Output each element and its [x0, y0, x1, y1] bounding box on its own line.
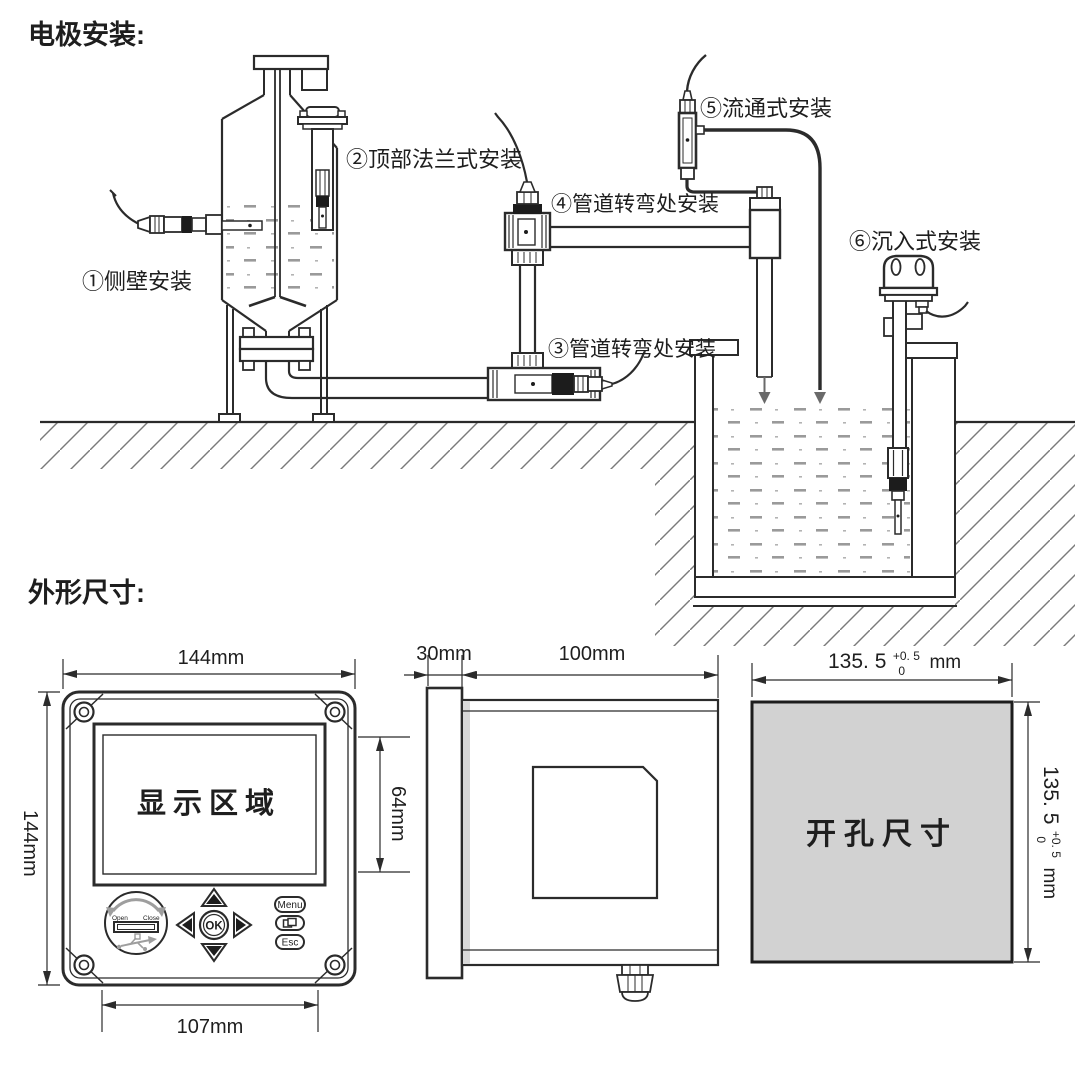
label-side-wall-install: ①侧壁安装: [82, 269, 192, 294]
cutout-label: 开孔尺寸: [806, 818, 958, 851]
basin-inlet-tee: [750, 187, 780, 404]
usb-open-label: Open: [112, 915, 128, 922]
electrode-pipe-bend-upper: [495, 113, 550, 265]
cutout-height-unit: mm: [1039, 867, 1060, 899]
label-pipe-bend-upper-install: ④管道转弯处安装: [551, 193, 719, 216]
display-area-label: 显示区域: [137, 787, 281, 820]
flow-arrow-pipe: [759, 392, 771, 404]
cutout-width-unit: mm: [929, 652, 961, 673]
cutout-view: 开孔尺寸 135. 5 +0. 5 0 mm 135. 5 +0. 5 0 mm: [752, 647, 1065, 962]
ok-button-label: OK: [205, 921, 223, 933]
basin-water: [714, 404, 910, 575]
label-flow-through-install: ⑤流通式安装: [700, 96, 832, 121]
cutout-height-tol-minus: 0: [1034, 836, 1048, 843]
front-view: 显示区域 Open Close: [19, 647, 410, 1038]
cutout-width-main: 135. 5: [828, 650, 886, 673]
cutout-height-dim: 135. 5 +0. 5 0 mm: [1033, 766, 1065, 899]
cutout-width-tol-minus: 0: [898, 664, 905, 678]
cutout-width-tol-plus: +0. 5: [893, 649, 920, 663]
usb-port: Open Close: [105, 892, 167, 954]
tank-outlet-flange: [240, 328, 313, 370]
menu-button-label: Menu: [277, 900, 302, 911]
flow-arrow-hose: [814, 392, 826, 404]
section-title-electrode-install: 电极安装:: [28, 20, 145, 50]
housing-body: [462, 700, 718, 965]
body-depth-dim: 100mm: [559, 643, 626, 665]
cutout-width-dim: 135. 5 +0. 5 0 mm: [828, 647, 961, 679]
manual-page: 电极安装: ①侧壁安装 ②顶部法兰式安装 ③管道转弯处安装 ④管道转弯处安装 ⑤…: [0, 0, 1080, 1085]
ground: [40, 422, 1075, 646]
display-height-dim: 64mm: [387, 786, 409, 842]
label-top-flange-install: ②顶部法兰式安装: [346, 147, 522, 172]
bezel-depth-dim: 30mm: [416, 643, 472, 665]
cutout-height-tol-plus: +0. 5: [1049, 831, 1063, 858]
label-pipe-bend-lower-install: ③管道转弯处安装: [548, 338, 716, 361]
usb-close-label: Close: [143, 915, 160, 922]
esc-button-label: Esc: [282, 938, 299, 949]
cable-gland: [617, 965, 653, 1001]
cutout-height-main: 135. 5: [1039, 766, 1062, 824]
section-title-outline-dims: 外形尺寸:: [28, 578, 145, 608]
front-bezel: [427, 688, 462, 978]
function-buttons: Menu Esc: [275, 897, 305, 949]
keypad-width-dim: 107mm: [177, 1016, 244, 1038]
label-submersion-install: ⑥沉入式安装: [849, 229, 981, 254]
side-view: 30mm 100mm: [404, 643, 718, 1001]
front-width-dim: 144mm: [178, 647, 245, 669]
stirrer-motor: [302, 69, 327, 90]
installation-and-dimension-diagram: 电极安装: ①侧壁安装 ②顶部法兰式安装 ③管道转弯处安装 ④管道转弯处安装 ⑤…: [0, 0, 1080, 1085]
basin: [690, 340, 957, 606]
front-height-dim: 144mm: [19, 810, 41, 877]
